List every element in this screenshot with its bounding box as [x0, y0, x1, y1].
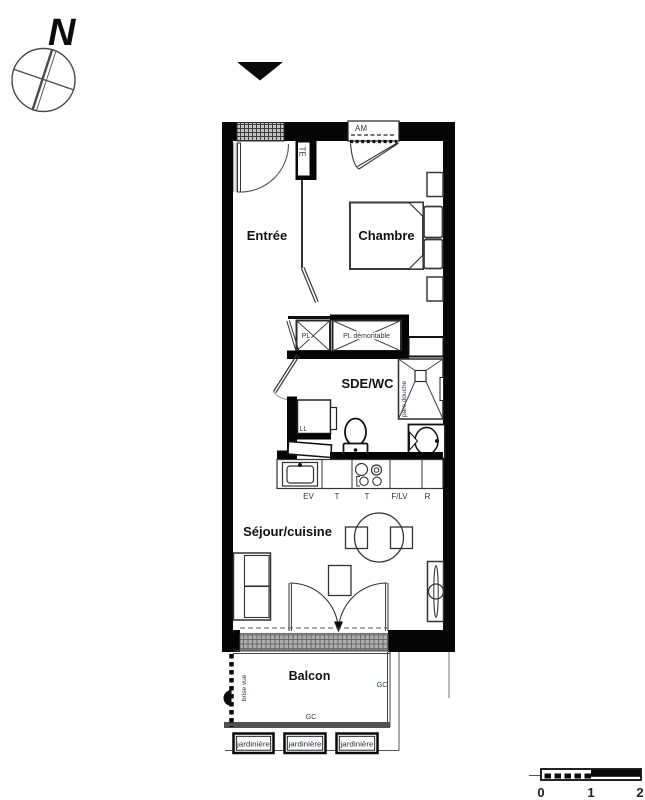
room-label-sejour: Séjour/cuisine: [243, 524, 332, 539]
wall-bottom-left: [222, 630, 240, 652]
nightstand-top: [427, 173, 443, 197]
brise-vue-post: [224, 690, 232, 706]
bathroom-shelf: [409, 337, 444, 357]
pillow: [424, 240, 443, 269]
entree-chambre-partition: [301, 180, 318, 303]
floor-plan-page: N AM TE: [0, 0, 645, 800]
flv-label: F/LV: [391, 492, 408, 501]
planter-box: jardinière: [337, 734, 378, 754]
t1-label: T: [335, 492, 340, 501]
am-niche: AM: [348, 121, 399, 169]
planter-box: jardinière: [285, 734, 326, 754]
dining-table: [346, 513, 413, 562]
scale-tick-0: 0: [537, 785, 544, 800]
scale-bar: 0 1 2: [529, 769, 644, 800]
floor-plan-drawing: N AM TE: [0, 0, 645, 800]
planter-boxes: jardinière jardinière jardinière: [234, 734, 378, 754]
wall-right: [443, 122, 455, 652]
planter-label: jardinière: [339, 740, 373, 749]
te-label: TE: [298, 147, 307, 157]
entry-arrow-icon: [334, 622, 343, 633]
threshold-hatch: [240, 634, 388, 651]
room-label-sde-wc: SDE/WC: [342, 376, 395, 391]
pl-label: PL: [302, 333, 311, 340]
planter-label: jardinière: [236, 740, 270, 749]
brise-vue-label: brise vue: [241, 674, 248, 701]
sde-wc-door: [274, 355, 300, 400]
entrance-direction-triangle-icon: [237, 62, 283, 81]
r-label: R: [425, 492, 431, 501]
room-label-chambre: Chambre: [358, 228, 414, 243]
toilet: [344, 419, 368, 457]
nightstand-bottom: [427, 277, 443, 301]
bathroom-door-leaf: [288, 442, 332, 458]
pillow: [424, 207, 443, 238]
room-label-entree: Entrée: [247, 228, 287, 243]
sink: [283, 463, 318, 487]
kitchen-labels: EV T T F/LV R: [303, 492, 430, 501]
radiator: [428, 562, 444, 622]
gc-bottom-label: GC: [306, 714, 317, 721]
wall-left: [222, 122, 233, 652]
pl-demontable-label: PL démontable: [343, 333, 390, 340]
wall-bottom-right: [388, 630, 455, 652]
pare-douche-label: pare douche: [401, 380, 408, 417]
closets-row: PL PL démontable: [287, 315, 409, 360]
planter-label: jardinière: [287, 740, 321, 749]
ev-label: EV: [303, 492, 314, 501]
sofa: [234, 553, 271, 620]
entry-door: [234, 123, 289, 193]
wall-kitchen-top: [330, 452, 443, 459]
scale-tick-2: 2: [636, 785, 643, 800]
north-label: N: [48, 12, 77, 54]
scale-tick-1: 1: [587, 785, 594, 800]
am-label: AM: [355, 124, 367, 133]
ll-label: LL: [300, 426, 308, 433]
te-panel: TE: [296, 140, 317, 180]
room-label-balcon: Balcon: [289, 669, 331, 683]
planter-box: jardinière: [234, 734, 274, 754]
gc-side-label: GC: [377, 682, 388, 689]
t2-label: T: [365, 492, 370, 501]
coffee-table: [329, 566, 352, 596]
shower: pare douche: [399, 359, 444, 419]
compass-icon: N: [12, 12, 77, 112]
kitchen-counter: [277, 460, 443, 489]
